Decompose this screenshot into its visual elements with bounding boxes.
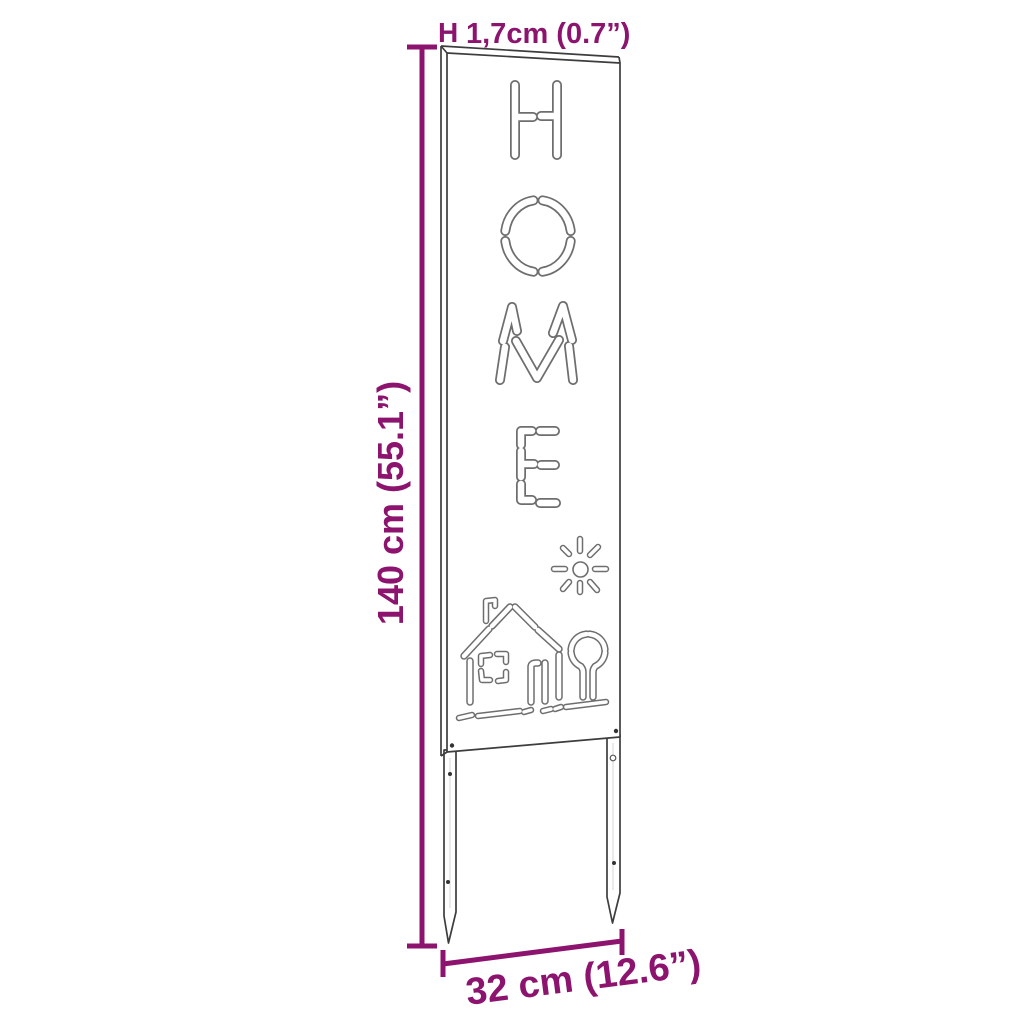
width-label: 32 cm (12.6”): [464, 942, 704, 1013]
thickness-marker: H: [438, 17, 458, 48]
thickness-label: 1,7cm (0.7”): [466, 18, 630, 50]
product-diagram: H 1,7cm (0.7”) 140 cm (55.1”) 32 cm (12.…: [0, 0, 1024, 1024]
left-stake: [444, 750, 456, 943]
screw-holes: [446, 729, 618, 884]
height-label: 140 cm (55.1”): [370, 381, 411, 625]
height-dimension-line: [407, 47, 437, 946]
diagram-canvas: H 1,7cm (0.7”) 140 cm (55.1”) 32 cm (12.…: [0, 0, 1024, 1024]
right-stake: [607, 735, 620, 923]
